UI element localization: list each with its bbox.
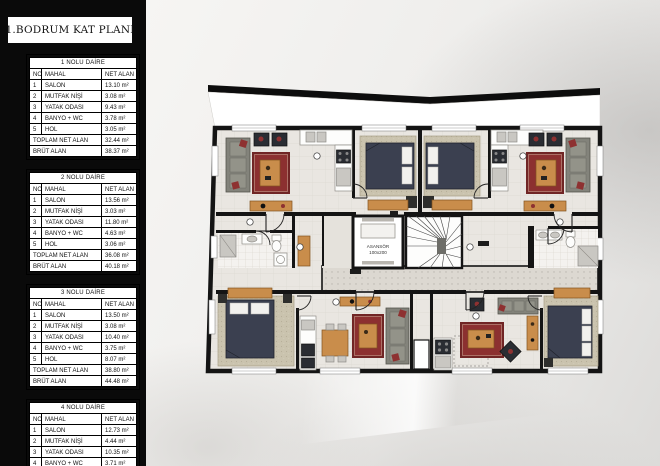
total-net-row: TOPLAM NET ALAN 38.80 m² [30, 365, 136, 376]
red-rug [526, 152, 564, 194]
total-net-label: TOPLAM NET ALAN [30, 135, 102, 145]
area-row: 2MUTFAK NİŞİ3.03 m² [30, 206, 136, 217]
unit-table-header: NO MAHAL NET ALAN [30, 299, 136, 310]
toilet [566, 231, 575, 248]
col-no: NO [30, 184, 42, 194]
area-row: 4BANYO + WC3.78 m² [30, 113, 136, 124]
col-netalan: NET ALAN [102, 414, 136, 424]
staircase [406, 216, 462, 268]
red-rug [460, 322, 504, 358]
area-row: 3YATAK ODASI11.80 m² [30, 217, 136, 228]
headboard [554, 288, 590, 298]
tall-cabinet [527, 316, 538, 350]
sofa [566, 138, 590, 192]
kitchen [434, 338, 452, 370]
sofa [226, 138, 250, 192]
kitchen-column [300, 316, 316, 370]
area-row: 2MUTFAK NİŞİ3.08 m² [30, 321, 136, 332]
area-row: 1SALON13.56 m² [30, 195, 136, 206]
elevator-label-line1: ASANSÖR [367, 243, 390, 249]
bed [366, 143, 414, 189]
area-row: 2MUTFAK NİŞİ4.44 m² [30, 436, 136, 447]
bed [226, 300, 274, 358]
gross-value: 40.18 m² [102, 261, 136, 271]
col-no: NO [30, 299, 42, 309]
red-rug [352, 314, 384, 358]
floor-plan-drawing: ASANSÖR 100x200 [146, 0, 660, 466]
col-mahal: MAHAL [42, 69, 102, 79]
area-row: 4BANYO + WC4.63 m² [30, 228, 136, 239]
unit-table-body: 1SALON13.50 m²2MUTFAK NİŞİ3.08 m²3YATAK … [30, 310, 136, 365]
red-rug [252, 152, 290, 194]
col-mahal: MAHAL [42, 184, 102, 194]
unit-table-body: 1SALON13.10 m²2MUTFAK NİŞİ3.08 m²3YATAK … [30, 80, 136, 135]
area-row: 4BANYO + WC3.71 m² [30, 458, 136, 466]
dresser [368, 200, 408, 210]
gross-value: 44.48 m² [102, 376, 136, 386]
area-row: 5HOL3.05 m² [30, 124, 136, 135]
total-net-row: TOPLAM NET ALAN 36.08 m² [30, 250, 136, 261]
coffee-table [260, 160, 280, 186]
unit-table-header: NO MAHAL NET ALAN [30, 69, 136, 80]
gross-label: BRÜT ALAN [30, 376, 102, 386]
area-row: 4BANYO + WC3.75 m² [30, 343, 136, 354]
total-net-label: TOPLAM NET ALAN [30, 365, 102, 375]
bathroom-right [534, 229, 598, 268]
toilet [272, 235, 281, 252]
area-row: 2MUTFAK NİŞİ3.08 m² [30, 91, 136, 102]
col-netalan: NET ALAN [102, 299, 136, 309]
gross-label: BRÜT ALAN [30, 261, 102, 271]
total-net-row: TOPLAM NET ALAN 32.44 m² [30, 135, 136, 146]
gross-row: BRÜT ALAN 40.18 m² [30, 261, 136, 271]
area-row: 1SALON12.73 m² [30, 425, 136, 436]
sofa [386, 308, 409, 364]
sideboard [524, 201, 566, 211]
gross-row: BRÜT ALAN 44.48 m² [30, 376, 136, 386]
area-row: 3YATAK ODASI10.40 m² [30, 332, 136, 343]
unit-table-body: 1SALON13.56 m²2MUTFAK NİŞİ3.03 m²3YATAK … [30, 195, 136, 250]
total-net-value: 38.80 m² [102, 365, 136, 375]
col-netalan: NET ALAN [102, 69, 136, 79]
headboard [228, 288, 272, 298]
col-netalan: NET ALAN [102, 184, 136, 194]
gross-value: 38.37 m² [102, 146, 136, 156]
dining-set [322, 324, 348, 362]
total-net-label: TOPLAM NET ALAN [30, 250, 102, 260]
total-net-value: 36.08 m² [102, 250, 136, 260]
area-row: 5HOL8.07 m² [30, 354, 136, 365]
col-no: NO [30, 414, 42, 424]
unit-table-title: 4 NOLU DAİRE [30, 403, 136, 414]
unit-area-table: 2 NOLU DAİRE NO MAHAL NET ALAN 1SALON13.… [29, 172, 137, 272]
area-row: 1SALON13.10 m² [30, 80, 136, 91]
sideboard [250, 201, 292, 211]
col-mahal: MAHAL [42, 299, 102, 309]
coffee-table [536, 160, 556, 186]
unit-area-table: 1 NOLU DAİRE NO MAHAL NET ALAN 1SALON13.… [29, 57, 137, 157]
unit-table-title: 3 NOLU DAİRE [30, 288, 136, 299]
col-mahal: MAHAL [42, 414, 102, 424]
unit-area-table: 3 NOLU DAİRE NO MAHAL NET ALAN 1SALON13.… [29, 287, 137, 387]
shaft-box [414, 340, 429, 369]
area-row: 1SALON13.50 m² [30, 310, 136, 321]
total-net-value: 32.44 m² [102, 135, 136, 145]
bed [426, 143, 474, 189]
left-legend-panel: 1.BODRUM KAT PLANI 1 NOLU DAİRE NO MAHAL… [0, 0, 146, 466]
unit-table-body: 1SALON12.73 m²2MUTFAK NİŞİ4.44 m²3YATAK … [30, 425, 136, 466]
floor-plan-sheet: 1.BODRUM KAT PLANI 1 NOLU DAİRE NO MAHAL… [0, 0, 660, 466]
unit-table-header: NO MAHAL NET ALAN [30, 414, 136, 425]
gross-row: BRÜT ALAN 38.37 m² [30, 146, 136, 156]
unit-table-header: NO MAHAL NET ALAN [30, 184, 136, 195]
hall-bench [298, 236, 310, 266]
lobby [322, 214, 354, 268]
bed [548, 306, 592, 358]
sideboard [340, 297, 380, 306]
plan-title: 1.BODRUM KAT PLANI [5, 24, 134, 36]
elevator: ASANSÖR 100x200 [353, 216, 403, 268]
area-row: 3YATAK ODASI10.35 m² [30, 447, 136, 458]
elevator-label-line2: 100x200 [369, 250, 387, 255]
unit-table-title: 2 NOLU DAİRE [30, 173, 136, 184]
plan-title-box: 1.BODRUM KAT PLANI [8, 17, 132, 43]
tables: 1 NOLU DAİRE NO MAHAL NET ALAN 1SALON13.… [29, 57, 137, 466]
unit-area-table: 4 NOLU DAİRE NO MAHAL NET ALAN 1SALON12.… [29, 402, 137, 466]
unit-table-title: 1 NOLU DAİRE [30, 58, 136, 69]
gross-label: BRÜT ALAN [30, 146, 102, 156]
col-no: NO [30, 69, 42, 79]
area-row: 3YATAK ODASI9.43 m² [30, 102, 136, 113]
area-row: 5HOL3.06 m² [30, 239, 136, 250]
dresser [432, 200, 472, 210]
